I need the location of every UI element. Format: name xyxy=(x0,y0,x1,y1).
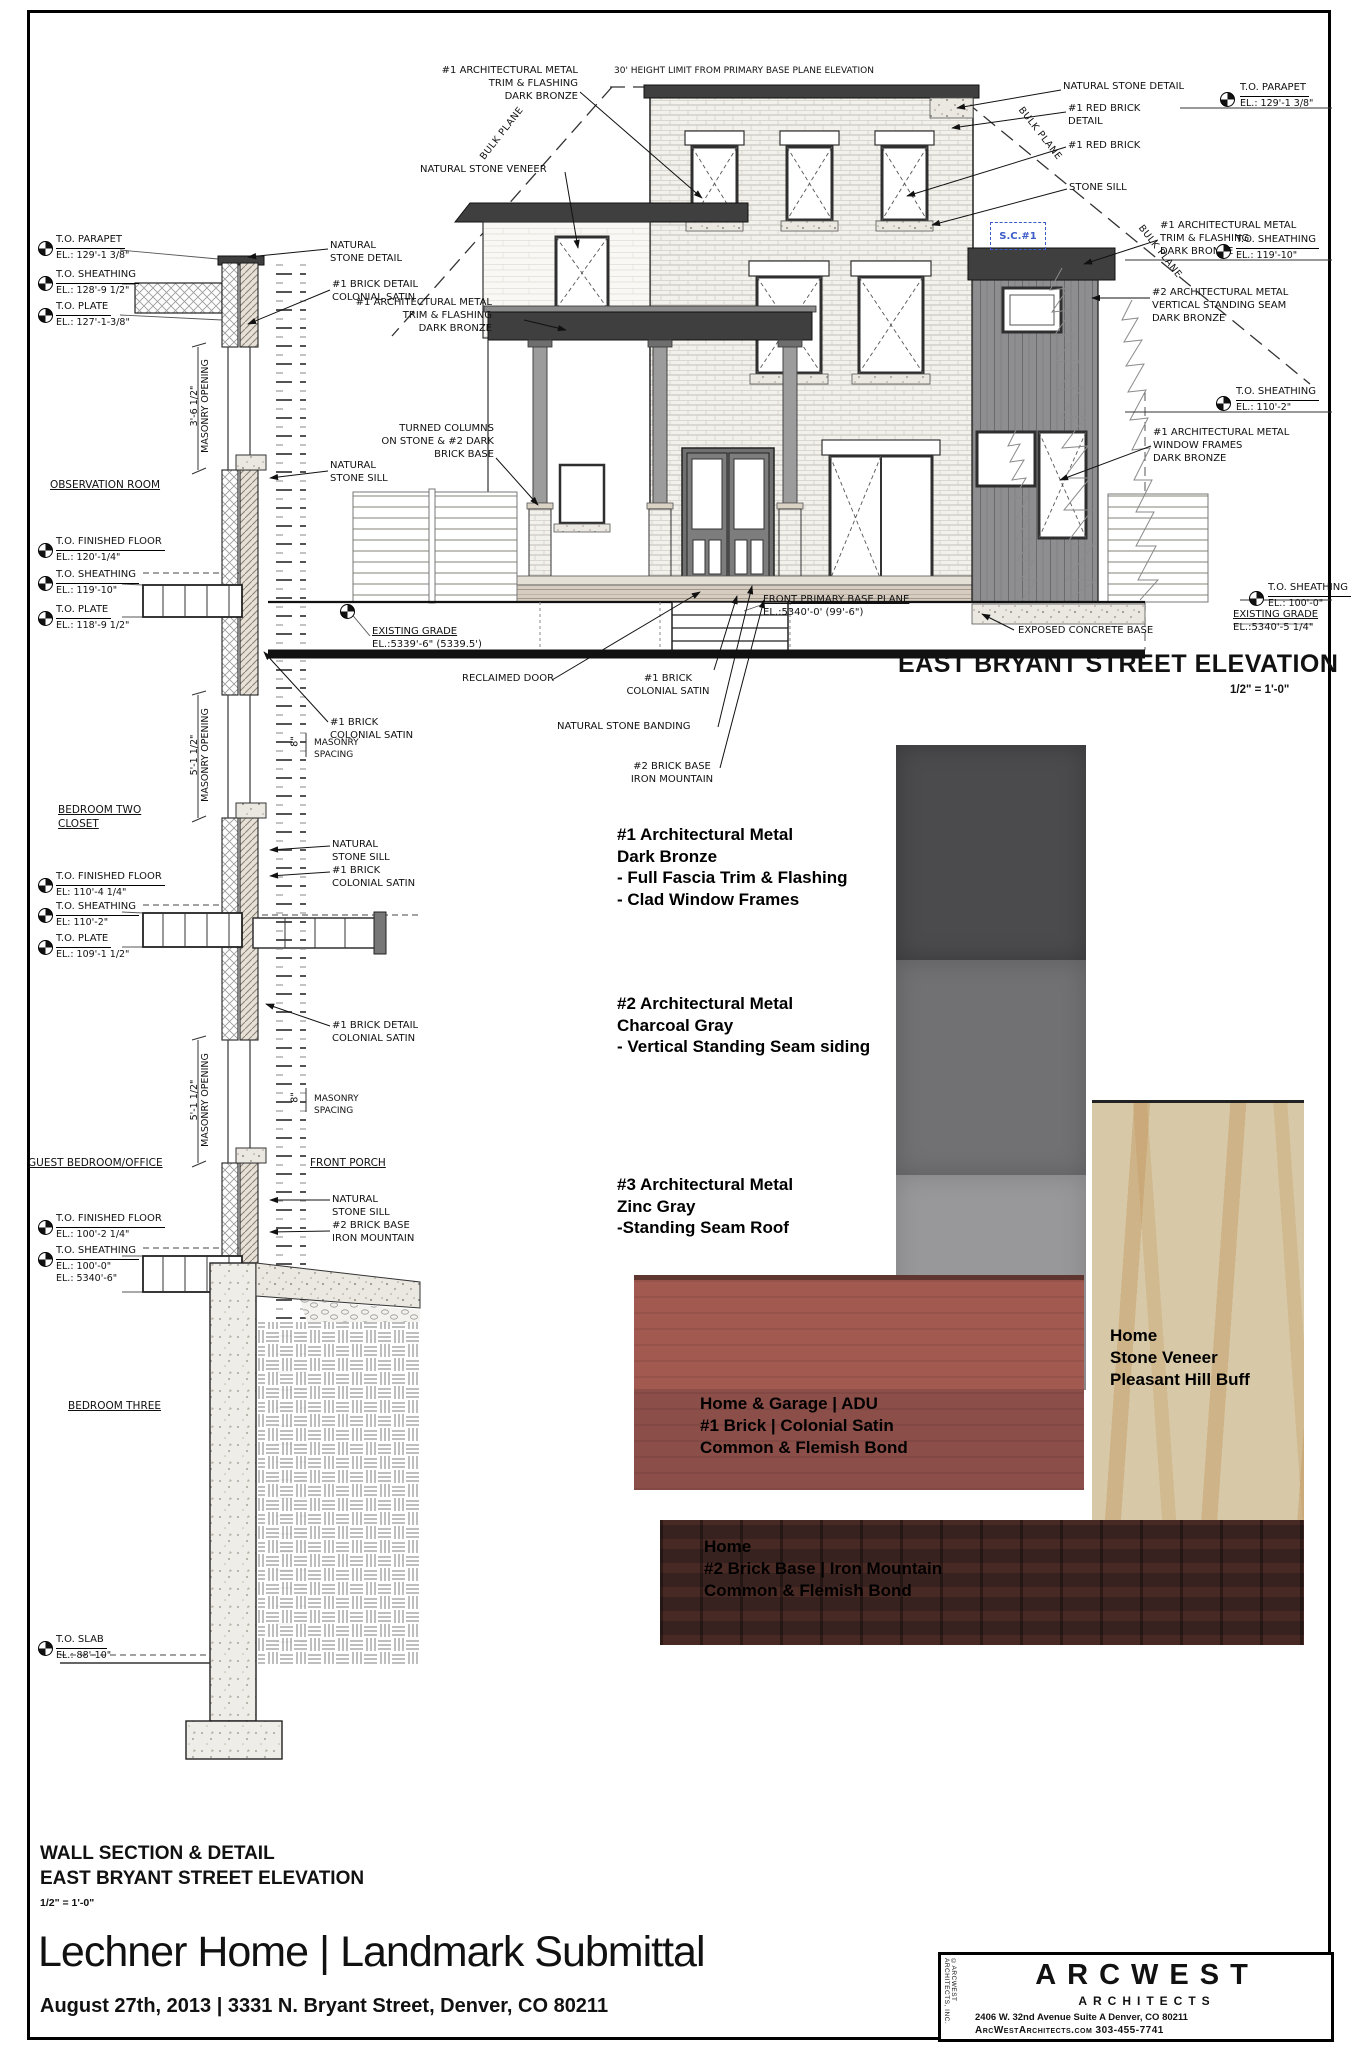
architect-copyright-vertical: ©ARCWEST ARCHITECTS, INC. xyxy=(943,1958,957,2034)
label-metal-trim-top: #1 ARCHITECTURAL METAL TRIM & FLASHING D… xyxy=(422,64,578,103)
datum-elevation: EL.: 110'-2" xyxy=(1236,401,1319,414)
datum-marker-icon xyxy=(38,1252,53,1267)
label-brick1-center: #1 BRICK COLONIAL SATIN xyxy=(618,672,718,698)
datum-elevation: EL.: 129'-1 3/8" xyxy=(1240,97,1313,110)
sample-brick2-label: Home #2 Brick Base | Iron Mountain Commo… xyxy=(704,1536,942,1602)
datum-name: T.O. PLATE xyxy=(56,933,111,948)
sample-metal-charcoal-gray xyxy=(896,960,1086,1175)
datum-name: T.O. SHEATHING xyxy=(56,269,139,284)
label-height-limit: 30' HEIGHT LIMIT FROM PRIMARY BASE PLANE… xyxy=(614,66,954,78)
dim-spacing-1: 8" xyxy=(290,736,301,746)
datum-to-sheathing-2: T.O. SHEATHING EL.: 119'-10" xyxy=(56,569,139,596)
datum-marker-icon xyxy=(38,241,53,256)
section-scale: 1/2" = 1'-0" xyxy=(40,1897,94,1909)
datum-name: T.O. SHEATHING xyxy=(1236,234,1319,249)
datum-marker-icon xyxy=(38,1220,53,1235)
dim-masonry-opening-3: 5'-1 1/2" MASONRY OPENING xyxy=(189,1040,211,1160)
datum-to-sheathing-3: T.O. SHEATHING EL: 110'-2" xyxy=(56,901,139,928)
callout-brick-detail-2: #1 BRICK DETAIL COLONIAL SATIN xyxy=(332,1019,418,1045)
datum-elevation: EL.: 100'-0" xyxy=(56,1260,139,1273)
datum-elevation: EL.: 119'-10" xyxy=(1236,249,1319,262)
datum-to-plate-2: T.O. PLATE EL.: 118'-9 1/2" xyxy=(56,604,129,631)
datum-marker-icon xyxy=(38,576,53,591)
section-title-line1: WALL SECTION & DETAIL xyxy=(40,1843,275,1865)
datum-elevation-alt: EL.: 5340'-6" xyxy=(56,1272,139,1285)
datum-to-sheathing-1: T.O. SHEATHING EL.: 128'-9 1/2" xyxy=(56,269,139,296)
sample-brick-iron-mountain: Home #2 Brick Base | Iron Mountain Commo… xyxy=(660,1520,1304,1645)
sample-stone-veneer: Home Stone Veneer Pleasant Hill Buff xyxy=(1092,1100,1304,1521)
architect-subtitle: ARCHITECTS xyxy=(971,1994,1323,2008)
datum-name: T.O. FINISHED FLOOR xyxy=(56,871,165,886)
label-reclaimed-door: RECLAIMED DOOR xyxy=(462,672,554,685)
date-address-line: August 27th, 2013 | 3331 N. Bryant Stree… xyxy=(40,1995,608,2018)
architect-address: 2406 W. 32nd Avenue Suite A Denver, CO 8… xyxy=(971,2012,1327,2023)
room-observation: OBSERVATION ROOM xyxy=(50,478,160,492)
label-exposed-concrete: EXPOSED CONCRETE BASE xyxy=(1018,624,1153,637)
datum-to-plate-1: T.O. PLATE EL.: 127'-1-3/8" xyxy=(56,301,130,328)
label-front-base-plane: FRONT PRIMARY BASE PLANE EL.:5340'-0' (9… xyxy=(763,593,909,619)
label-existing-grade-right: EXISTING GRADE EL.:5340'-5 1/4" xyxy=(1233,608,1318,634)
label-metal-trim-porch: #1 ARCHITECTURAL METAL TRIM & FLASHING D… xyxy=(330,296,492,335)
datum-elevation: EL.: 127'-1-3/8" xyxy=(56,316,130,329)
datum-marker-icon xyxy=(38,611,53,626)
callout-natural-stone-detail: NATURAL STONE DETAIL xyxy=(330,239,402,265)
elev-datum-parapet: T.O. PARAPET EL.: 129'-1 3/8" xyxy=(1240,82,1313,109)
material-label-metal-1: #1 Architectural Metal Dark Bronze - Ful… xyxy=(617,824,877,910)
grade-marker-icon xyxy=(340,604,355,619)
datum-elevation: EL.: 128'-9 1/2" xyxy=(56,284,139,297)
dim-masonry-spacing-2: MASONRY SPACING xyxy=(314,1094,359,1117)
datum-name: T.O. PLATE xyxy=(56,604,111,619)
datum-elevation: EL.: 129'-1 3/8" xyxy=(56,249,129,262)
callout-sill-and-brick-base: NATURAL STONE SILL #2 BRICK BASE IRON MO… xyxy=(332,1193,414,1245)
datum-marker-icon xyxy=(1216,244,1231,259)
sample-brick1-label: Home & Garage | ADU #1 Brick | Colonial … xyxy=(700,1393,908,1459)
room-bedroom-three: BEDROOM THREE xyxy=(68,1399,161,1413)
callout-stone-sill-1: NATURAL STONE SILL xyxy=(330,459,388,485)
datum-marker-icon xyxy=(38,543,53,558)
section-title-line2: EAST BRYANT STREET ELEVATION xyxy=(40,1868,364,1890)
callout-brick-colonial-1: #1 BRICK COLONIAL SATIN xyxy=(330,716,413,742)
datum-elevation: EL: 110'-2" xyxy=(56,916,139,929)
sample-metal-dark-bronze xyxy=(896,745,1086,960)
datum-elevation: EL.: 119'-10" xyxy=(56,584,139,597)
datum-elevation: EL.: 100'-2 1/4" xyxy=(56,1228,165,1241)
datum-name: T.O. PARAPET xyxy=(1240,82,1309,97)
datum-name: T.O. FINISHED FLOOR xyxy=(56,1213,165,1228)
dim-masonry-opening-2: 5'-1 1/2" MASONRY OPENING xyxy=(189,695,211,815)
datum-marker-icon xyxy=(1249,591,1264,606)
label-stone-banding: NATURAL STONE BANDING xyxy=(557,720,690,733)
datum-name: T.O. PLATE xyxy=(56,301,111,316)
sample-stone-label: Home Stone Veneer Pleasant Hill Buff xyxy=(1110,1325,1250,1391)
label-metal-seam-right: #2 ARCHITECTURAL METAL VERTICAL STANDING… xyxy=(1152,286,1322,325)
dim-masonry-opening-1: 3'-6 1/2" MASONRY OPENING xyxy=(189,346,211,466)
datum-to-ff-3: T.O. FINISHED FLOOR EL: 110'-4 1/4" xyxy=(56,871,165,898)
datum-name: T.O. SHEATHING xyxy=(1236,386,1319,401)
architect-logo-block: ©ARCWEST ARCHITECTS, INC. ARCWEST ARCHIT… xyxy=(938,1952,1334,2042)
datum-name: T.O. SHEATHING xyxy=(56,1245,139,1260)
architect-name: ARCWEST xyxy=(971,1959,1323,1992)
datum-to-parapet: T.O. PARAPET EL.: 129'-1 3/8" xyxy=(56,234,129,261)
elevation-scale: 1/2" = 1'-0" xyxy=(1230,684,1289,696)
datum-to-slab: T.O. SLAB EL.: 88'-10" xyxy=(56,1634,111,1661)
datum-marker-icon xyxy=(38,940,53,955)
room-bedroom-two: BEDROOM TWO CLOSET xyxy=(58,803,141,831)
datum-marker-icon xyxy=(38,1641,53,1656)
label-stone-sill-right: STONE SILL xyxy=(1069,181,1127,194)
datum-name: T.O. SLAB xyxy=(56,1634,107,1649)
label-stone-detail-right: NATURAL STONE DETAIL xyxy=(1063,80,1184,93)
datum-marker-icon xyxy=(1220,92,1235,107)
elev-datum-sheathing-3: T.O. SHEATHING EL.: 100'-0" xyxy=(1268,582,1351,609)
datum-marker-icon xyxy=(38,878,53,893)
architect-contact: ArcWestArchitects.com 303-455-7741 xyxy=(971,2025,1327,2036)
drawing-sheet: T.O. PARAPET EL.: 129'-1 3/8" T.O. SHEAT… xyxy=(0,0,1355,2048)
elev-datum-sheathing-1: T.O. SHEATHING EL.: 119'-10" xyxy=(1236,234,1319,261)
datum-name: T.O. PARAPET xyxy=(56,234,125,249)
datum-to-sheathing-4: T.O. SHEATHING EL.: 100'-0" EL.: 5340'-6… xyxy=(56,1245,139,1285)
datum-name: T.O. SHEATHING xyxy=(1268,582,1351,597)
room-front-porch: FRONT PORCH xyxy=(310,1156,386,1170)
dim-spacing-2: 8" xyxy=(290,1092,301,1102)
room-guest-bedroom: GUEST BEDROOM/OFFICE xyxy=(28,1156,163,1170)
label-red-brick: #1 RED BRICK xyxy=(1068,139,1140,152)
label-brick2-base: #2 BRICK BASE IRON MOUNTAIN xyxy=(620,760,724,786)
sample-brick-colonial-satin: Home & Garage | ADU #1 Brick | Colonial … xyxy=(634,1275,1084,1490)
project-title: Lechner Home | Landmark Submittal xyxy=(38,1928,705,1977)
label-red-brick-detail: #1 RED BRICK DETAIL xyxy=(1068,102,1140,128)
datum-marker-icon xyxy=(38,908,53,923)
datum-marker-icon xyxy=(38,308,53,323)
datum-elevation: EL: 110'-4 1/4" xyxy=(56,886,165,899)
datum-elevation: EL.: 109'-1 1/2" xyxy=(56,948,129,961)
material-label-metal-3: #3 Architectural Metal Zinc Gray -Standi… xyxy=(617,1174,877,1239)
datum-name: T.O. FINISHED FLOOR xyxy=(56,536,165,551)
section-cut-tag: S.C.#1 xyxy=(990,222,1046,250)
label-stone-veneer: NATURAL STONE VENEER xyxy=(420,163,547,176)
label-window-frames-right: #1 ARCHITECTURAL METAL WINDOW FRAMES DAR… xyxy=(1153,426,1323,465)
datum-marker-icon xyxy=(38,276,53,291)
datum-to-ff-2: T.O. FINISHED FLOOR EL.: 120'-1/4" xyxy=(56,536,165,563)
datum-elevation: EL.: 118'-9 1/2" xyxy=(56,619,129,632)
material-label-metal-2: #2 Architectural Metal Charcoal Gray - V… xyxy=(617,993,897,1058)
datum-name: T.O. SHEATHING xyxy=(56,901,139,916)
datum-elevation: EL.: 120'-1/4" xyxy=(56,551,165,564)
elevation-title: EAST BRYANT STREET ELEVATION xyxy=(898,650,1338,679)
datum-name: T.O. SHEATHING xyxy=(56,569,139,584)
datum-elevation: EL.: 88'-10" xyxy=(56,1649,111,1662)
label-turned-columns: TURNED COLUMNS ON STONE & #2 DARK BRICK … xyxy=(352,422,494,461)
datum-to-plate-3: T.O. PLATE EL.: 109'-1 1/2" xyxy=(56,933,129,960)
callout-sill-and-brick: NATURAL STONE SILL #1 BRICK COLONIAL SAT… xyxy=(332,838,415,890)
datum-marker-icon xyxy=(1216,396,1231,411)
elev-datum-sheathing-2: T.O. SHEATHING EL.: 110'-2" xyxy=(1236,386,1319,413)
datum-to-ff-4: T.O. FINISHED FLOOR EL.: 100'-2 1/4" xyxy=(56,1213,165,1240)
label-existing-grade-left: EXISTING GRADE EL.:5339'-6" (5339.5') xyxy=(372,625,482,651)
